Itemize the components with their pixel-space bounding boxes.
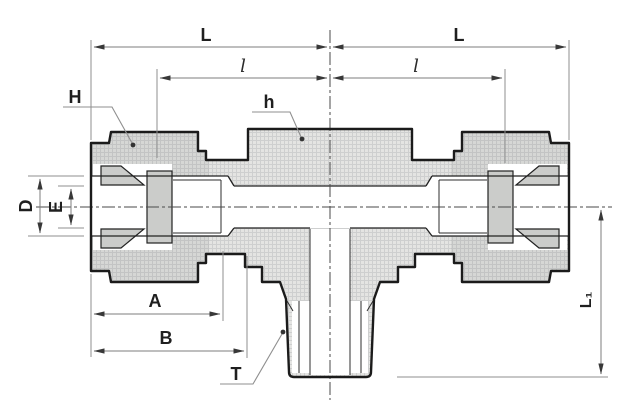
label-L-left: L [201, 25, 212, 45]
label-H: H [69, 87, 82, 107]
leader-T-dot [281, 330, 286, 335]
label-B: B [160, 328, 173, 348]
label-l-right: l [413, 56, 419, 77]
fitting-technical-drawing: L L l l H h A B T D E L₁ [0, 0, 629, 412]
label-E: E [46, 201, 66, 213]
label-T: T [231, 364, 242, 384]
leader-H-dot [131, 143, 136, 148]
leader-h-dot [300, 137, 305, 142]
label-h: h [264, 92, 275, 112]
label-D: D [16, 200, 36, 213]
label-l-left: l [240, 56, 246, 77]
label-L1: L₁ [578, 291, 595, 308]
leader-T [220, 334, 282, 384]
tee-fitting-diagram: L L l l H h A B T D E L₁ [0, 0, 629, 412]
label-A: A [149, 291, 162, 311]
label-L-right: L [454, 25, 465, 45]
